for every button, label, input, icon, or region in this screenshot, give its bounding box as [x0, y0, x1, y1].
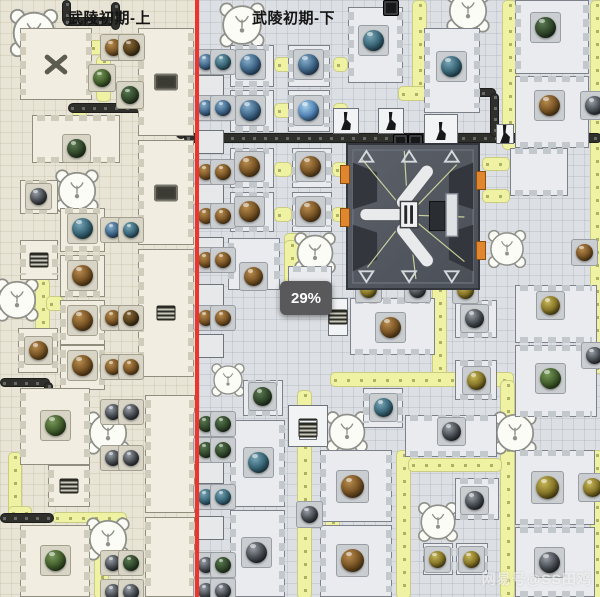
sphere-teal [215, 489, 231, 505]
sphere-teal [215, 54, 231, 70]
robot-icon [434, 122, 448, 140]
cat-decal [484, 226, 530, 272]
robot-icon [498, 125, 512, 143]
machine-sphere[interactable] [118, 354, 144, 380]
panel-divider-line [195, 0, 199, 597]
machine-sphere[interactable] [24, 336, 53, 365]
sphere-olive [463, 551, 480, 568]
sphere-blue [240, 54, 261, 75]
sphere-dark [442, 422, 461, 441]
sphere-brown [72, 355, 93, 376]
grille-icon [30, 253, 49, 268]
machine-sphere[interactable] [358, 25, 389, 56]
small-machine[interactable] [198, 516, 224, 540]
machine-port-orange [340, 208, 350, 227]
machine-sphere[interactable] [25, 183, 52, 210]
machine-sphere[interactable] [67, 260, 98, 291]
machine-sphere[interactable] [458, 546, 485, 573]
sphere-brown [123, 359, 139, 375]
sphere-teal [363, 30, 384, 51]
machine-sphere[interactable] [210, 49, 236, 75]
sphere-dark [465, 309, 484, 328]
factory-building[interactable] [138, 140, 194, 245]
sphere-teal [248, 452, 269, 473]
sphere-dark [246, 542, 267, 563]
conveyor-belt-yellow [482, 189, 510, 203]
machine-sphere[interactable] [118, 399, 144, 425]
machine-sphere[interactable] [293, 49, 324, 80]
sphere-dgreen [67, 139, 86, 158]
factory-building[interactable] [20, 28, 92, 100]
machine-sphere[interactable] [118, 305, 144, 331]
machine-sphere[interactable] [118, 217, 144, 243]
machine-sphere[interactable] [295, 151, 326, 182]
conveyor-belt-dark [0, 378, 50, 387]
map-title-top: 武陵初期-上 [68, 7, 151, 28]
machine-sphere[interactable] [118, 34, 145, 61]
map-title-bottom: 武陵初期-下 [252, 7, 335, 28]
machine-sphere[interactable] [210, 437, 236, 463]
sphere-dgreen [215, 416, 231, 432]
sphere-olive [541, 296, 560, 315]
machine-sphere[interactable] [437, 417, 466, 446]
sphere-dark [215, 583, 231, 597]
conveyor-belt-yellow [274, 162, 292, 177]
sphere-dbrown [123, 310, 139, 326]
sphere-dgreen [121, 86, 139, 104]
conveyor-belt-yellow [482, 157, 510, 171]
grille-icon [329, 310, 348, 325]
device-icon [154, 184, 178, 201]
machine-sphere[interactable] [210, 484, 236, 510]
sphere-blue [298, 54, 319, 75]
conveyor-belt-yellow [274, 207, 292, 222]
factory-building[interactable] [48, 465, 90, 507]
sphere-teal [441, 56, 462, 77]
machine-sphere[interactable] [239, 262, 268, 291]
factory-building[interactable] [20, 240, 58, 280]
factory-building[interactable] [138, 249, 194, 377]
assembly-machine[interactable] [346, 143, 480, 290]
machine-sphere[interactable] [460, 486, 489, 515]
sphere-olive [467, 371, 486, 390]
robot-icon [339, 112, 353, 130]
sphere-dgreen [123, 555, 139, 571]
machine-sphere[interactable] [424, 546, 451, 573]
sphere-brown [239, 201, 260, 222]
sphere-brown [72, 265, 93, 286]
sphere-brown [29, 341, 48, 360]
machine-sphere[interactable] [234, 151, 265, 182]
sphere-brown [215, 164, 231, 180]
machine-sphere[interactable] [241, 537, 272, 568]
factory-building[interactable] [510, 148, 568, 196]
fan-icon [40, 48, 72, 80]
machine-sphere[interactable] [530, 12, 561, 43]
small-machine[interactable] [378, 108, 404, 134]
small-machine[interactable] [198, 75, 224, 97]
belt-item-crate [383, 0, 399, 16]
machine-sphere[interactable] [118, 579, 144, 597]
cat-decal [208, 360, 248, 400]
machine-sphere[interactable] [460, 304, 489, 333]
sphere-dark [123, 584, 139, 597]
machine-sphere[interactable] [375, 312, 406, 343]
machine-sphere[interactable] [578, 473, 600, 502]
machine-sphere[interactable] [210, 578, 236, 597]
sphere-teal [123, 222, 139, 238]
sphere-dark [465, 491, 484, 510]
sphere-green [93, 69, 111, 87]
assembly-machine-art [348, 145, 478, 288]
machine-port-orange [476, 241, 486, 260]
grille-icon [157, 306, 176, 321]
machine-sphere[interactable] [336, 544, 369, 577]
machine-sphere[interactable] [210, 411, 236, 437]
conveyor-belt-yellow [333, 57, 348, 72]
sphere-dark [30, 188, 47, 205]
factory-building[interactable] [138, 28, 194, 136]
sphere-brown [539, 95, 560, 116]
machine-sphere[interactable] [40, 410, 71, 441]
sphere-green [45, 550, 66, 571]
machine-sphere[interactable] [210, 305, 236, 331]
sphere-green [45, 415, 66, 436]
sphere-brown [576, 244, 593, 261]
robot-icon [384, 112, 398, 130]
sphere-dark [123, 404, 139, 420]
sphere-brown [341, 475, 364, 498]
sphere-brown [300, 201, 321, 222]
machine-sphere[interactable] [293, 95, 324, 126]
sphere-blue [215, 100, 231, 116]
machine-sphere[interactable] [210, 247, 236, 273]
sphere-olive [429, 551, 446, 568]
sphere-dbrown [123, 39, 140, 56]
conveyor-belt-yellow [408, 458, 502, 472]
sphere-olive [583, 478, 600, 497]
machine-sphere[interactable] [210, 159, 236, 185]
machine-sphere[interactable] [295, 196, 326, 227]
sphere-brown [215, 208, 231, 224]
grille-icon [299, 423, 318, 438]
sphere-dark [585, 96, 600, 115]
machine-sphere[interactable] [531, 471, 564, 504]
small-machine[interactable] [333, 108, 359, 134]
factory-map-screenshot: 武陵初期-上 武陵初期-下 29% 网易号@SS田鸡 [0, 0, 600, 597]
sphere-dgreen [253, 387, 272, 406]
machine-sphere[interactable] [116, 81, 144, 109]
machine-sphere[interactable] [296, 501, 323, 528]
sphere-dark [586, 347, 600, 364]
machine-sphere[interactable] [118, 445, 144, 471]
progress-tooltip: 29% [280, 281, 332, 315]
sphere-dgreen [535, 17, 556, 38]
machine-sphere[interactable] [210, 203, 236, 229]
small-machine[interactable] [198, 334, 224, 358]
machine-sphere[interactable] [580, 91, 600, 120]
machine-sphere[interactable] [210, 552, 236, 578]
sphere-brown [215, 252, 231, 268]
sphere-brown [215, 310, 231, 326]
machine-sphere[interactable] [336, 470, 369, 503]
grille-icon [60, 479, 79, 494]
sphere-brown [341, 549, 364, 572]
factory-building[interactable] [145, 517, 195, 597]
sphere-brown [239, 156, 260, 177]
sphere-brown [72, 310, 93, 331]
machine-sphere[interactable] [436, 51, 467, 82]
small-machine[interactable] [198, 284, 224, 306]
machine-sphere[interactable] [235, 95, 266, 126]
cat-decal [0, 274, 43, 326]
machine-sphere[interactable] [248, 382, 277, 411]
sphere-green [540, 368, 561, 389]
sphere-dark [123, 450, 139, 466]
sphere-blue [240, 100, 261, 121]
device-icon [154, 74, 178, 91]
machine-sphere[interactable] [118, 550, 144, 576]
machine-sphere[interactable] [243, 447, 274, 478]
sphere-dgreen [215, 442, 231, 458]
sphere-brown [244, 267, 263, 286]
machine-sphere[interactable] [536, 291, 565, 320]
machine-sphere[interactable] [67, 305, 98, 336]
factory-building[interactable] [145, 395, 195, 513]
machine-sphere[interactable] [67, 350, 98, 381]
watermark-text: 网易号@SS田鸡 [482, 569, 592, 589]
machine-port-orange [476, 171, 486, 190]
sphere-dark [301, 506, 318, 523]
machine-sphere[interactable] [571, 239, 598, 266]
machine-sphere[interactable] [40, 545, 71, 576]
conveyor-belt-yellow [396, 450, 411, 597]
sphere-dgreen [215, 557, 231, 573]
machine-sphere[interactable] [234, 196, 265, 227]
machine-sphere[interactable] [62, 134, 91, 163]
machine-sphere[interactable] [534, 90, 565, 121]
machine-sphere[interactable] [462, 366, 491, 395]
small-machine[interactable] [299, 420, 317, 440]
sphere-brown [380, 317, 401, 338]
machine-sphere[interactable] [210, 95, 236, 121]
machine-sphere[interactable] [581, 342, 600, 369]
small-machine[interactable] [496, 124, 514, 144]
small-machine[interactable] [198, 130, 224, 154]
conveyor-belt-dark [0, 513, 54, 523]
machine-sphere[interactable] [88, 64, 116, 92]
machine-sphere[interactable] [67, 213, 98, 244]
machine-sphere[interactable] [235, 49, 266, 80]
machine-sphere[interactable] [535, 363, 566, 394]
sphere-bblue [298, 100, 319, 121]
machine-port-orange [340, 165, 350, 184]
sphere-teal [72, 218, 93, 239]
small-machine[interactable] [198, 462, 224, 484]
machine-sphere[interactable] [369, 393, 398, 422]
sphere-teal [374, 398, 393, 417]
sphere-brown [300, 156, 321, 177]
sphere-olive [536, 476, 559, 499]
